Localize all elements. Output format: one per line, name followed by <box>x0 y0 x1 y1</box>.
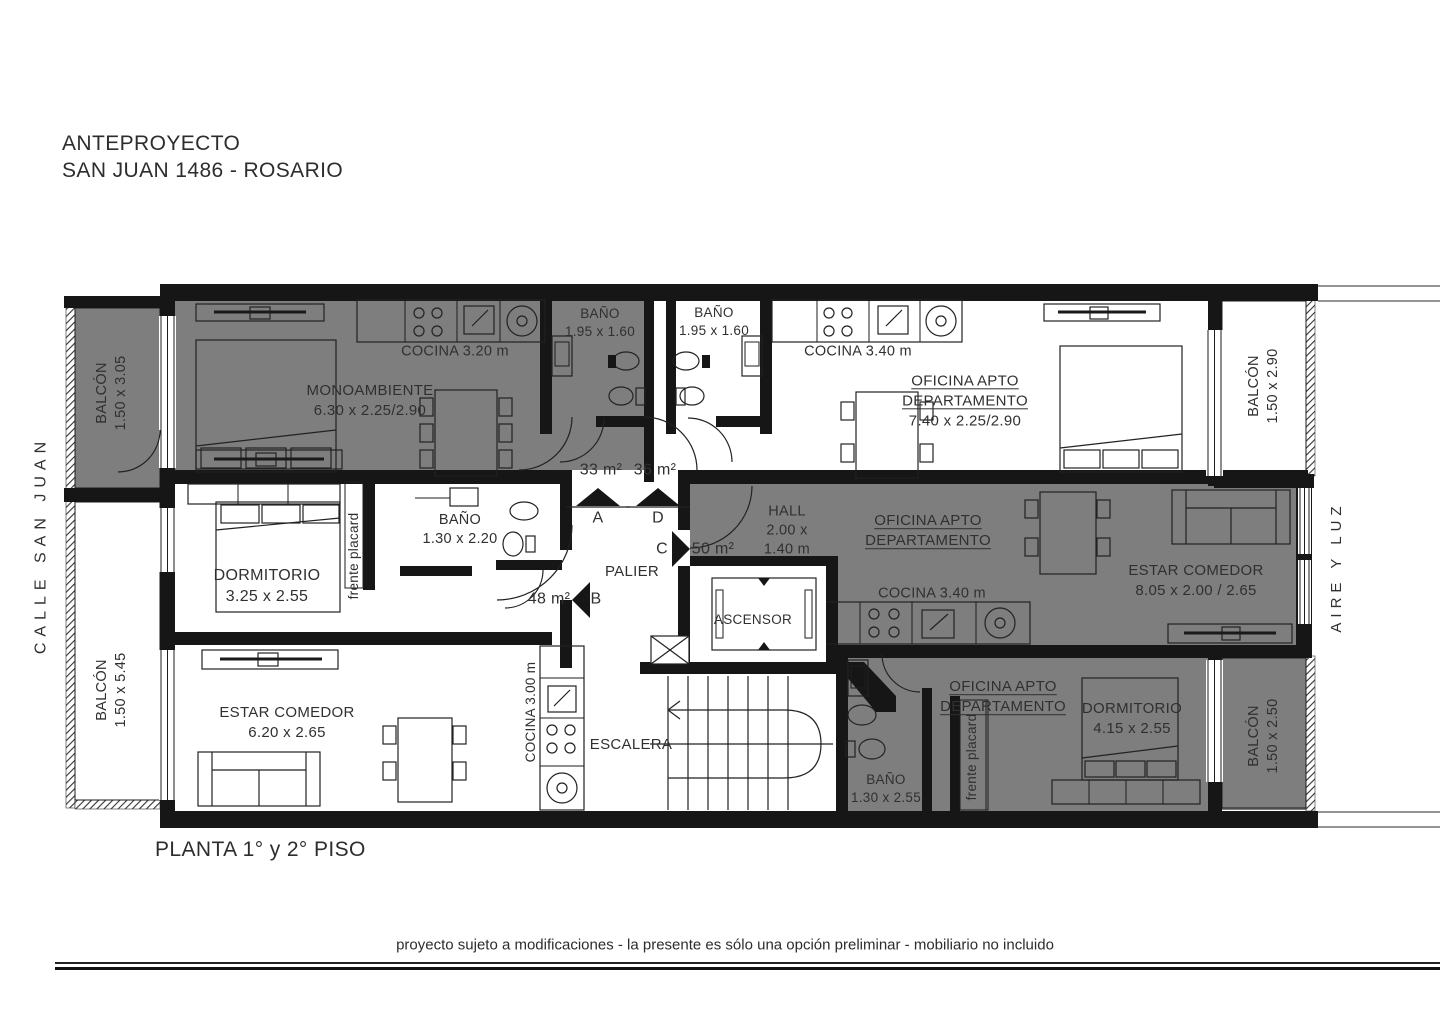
bath-d-label: BAÑO1.95 x 1.60 <box>679 304 749 340</box>
stairs-label: ESCALERA <box>590 735 672 755</box>
area-48-label: 48 m² <box>528 588 570 609</box>
floor-title: PLANTA 1° y 2° PISO <box>155 838 366 862</box>
entry-b-label: B <box>591 588 602 609</box>
bath-a-label: BAÑO1.95 x 1.60 <box>565 305 635 341</box>
placard-c-label: frente placard <box>963 714 981 801</box>
living-c-label: ESTAR COMEDOR8.05 x 2.00 / 2.65 <box>1128 561 1263 601</box>
street-label: CALLE SAN JUAN <box>30 436 51 654</box>
balcony-right-top-label: BALCÓN1.50 x 2.90 <box>1245 348 1283 423</box>
entry-d-label: D <box>652 507 664 528</box>
balcony-right-bottom-label: BALCÓN1.50 x 2.50 <box>1245 698 1283 773</box>
kitchen-b-label: COCINA 3.00 m <box>522 662 540 763</box>
kitchen-a-label: COCINA 3.20 m <box>401 342 509 361</box>
living-b-label: ESTAR COMEDOR6.20 x 2.65 <box>219 703 354 743</box>
kitchen-c-label: COCINA 3.40 m <box>878 584 986 603</box>
disclaimer-text: proyecto sujeto a modificaciones - la pr… <box>396 937 1054 954</box>
placard-b-label: frente placard <box>345 513 363 600</box>
entry-c-label: C <box>656 538 668 559</box>
office-top-label: OFICINA APTODEPARTAMENTO7.40 x 2.25/2.90 <box>902 371 1028 430</box>
monoambiente-label: MONOAMBIENTE6.30 x 2.25/2.90 <box>307 381 434 421</box>
stairs-icon <box>650 676 833 810</box>
balcony-left-bottom-label: BALCÓN1.50 x 5.45 <box>93 652 131 727</box>
title-line2: SAN JUAN 1486 - ROSARIO <box>62 157 343 184</box>
hall-label: HALL2.00 x1.40 m <box>764 502 810 559</box>
footer-rule-thin <box>55 962 1440 964</box>
area-36-label: 36 m² <box>634 459 676 480</box>
drawing-title: ANTEPROYECTO SAN JUAN 1486 - ROSARIO <box>62 130 343 184</box>
office-mid-label: OFICINA APTODEPARTAMENTO <box>865 511 991 551</box>
air-shaft-label: AIRE Y LUZ <box>1327 501 1347 632</box>
elevator-label: ASCENSOR <box>714 611 792 629</box>
bedroom-c-label: DORMITORIO4.15 x 2.55 <box>1082 699 1182 739</box>
palier-label: PALIER <box>605 562 659 582</box>
bedroom-b-label: DORMITORIO3.25 x 2.55 <box>214 565 321 607</box>
footer-rule-thick <box>55 967 1440 970</box>
area-33-label: 33 m² <box>580 459 622 480</box>
office-bottom-label: OFICINA APTODEPARTAMENTO <box>940 677 1066 717</box>
bath-b-label: BAÑO1.30 x 2.20 <box>422 511 497 549</box>
bath-c-label: BAÑO1.30 x 2.55 <box>851 771 921 807</box>
duct-icon <box>651 636 689 664</box>
entry-arrow-icon <box>566 488 690 618</box>
kitchen-d-label: COCINA 3.40 m <box>804 342 912 361</box>
title-line1: ANTEPROYECTO <box>62 130 343 157</box>
balcony-left-top-label: BALCÓN1.50 x 3.05 <box>93 355 131 430</box>
entry-a-label: A <box>593 507 604 528</box>
floorplan-sheet: ANTEPROYECTO SAN JUAN 1486 - ROSARIO CAL… <box>0 0 1440 1019</box>
area-50-label: 50 m² <box>692 538 734 559</box>
